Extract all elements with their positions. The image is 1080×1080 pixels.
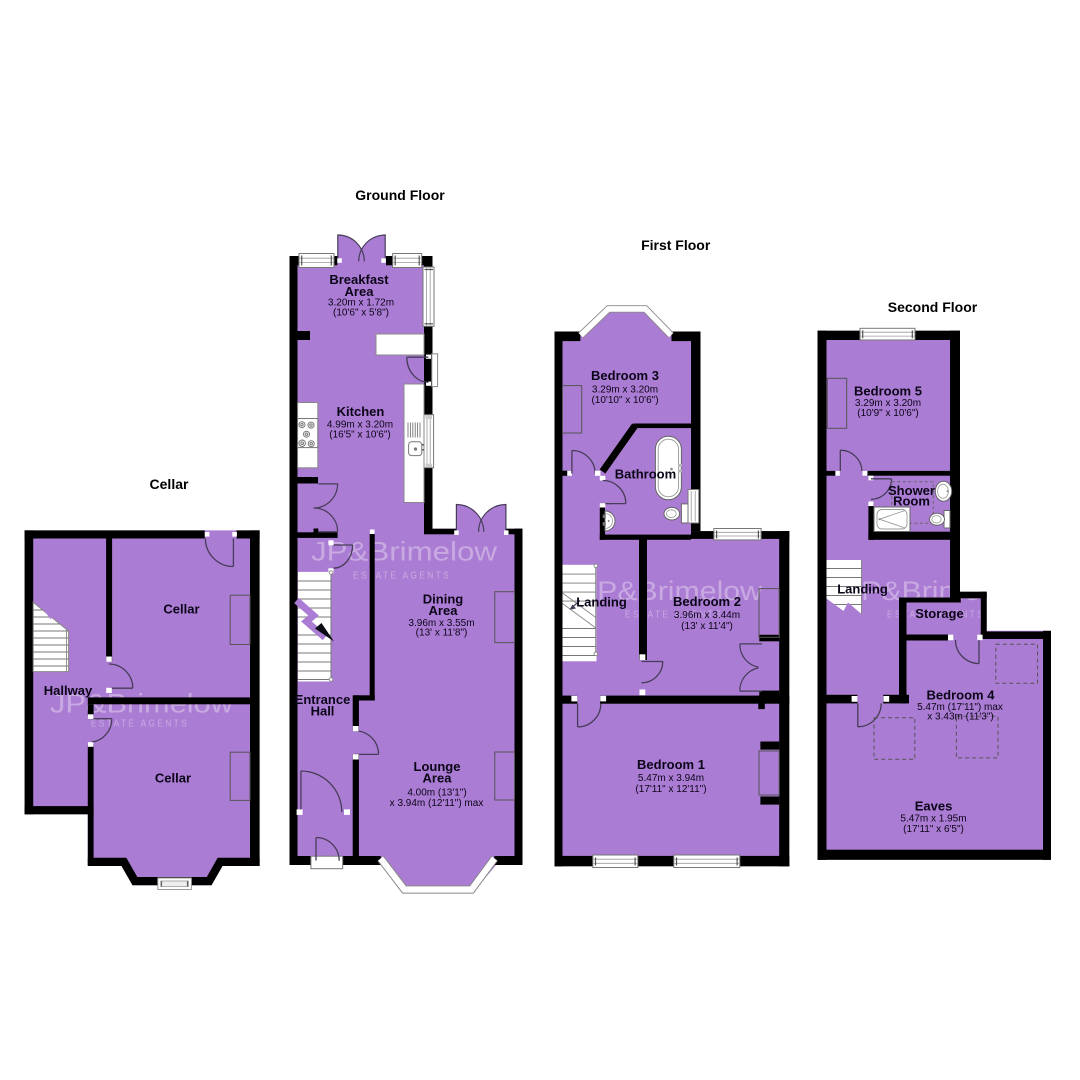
svg-text:5.47m x 1.95m: 5.47m x 1.95m [900,813,966,824]
svg-text:(17'11" x 6'5"): (17'11" x 6'5") [903,824,964,835]
svg-text:Hallway: Hallway [44,683,93,698]
svg-text:Area: Area [429,603,459,618]
svg-text:ESTATE AGENTS: ESTATE AGENTS [353,570,451,582]
svg-text:5.47m x 3.94m: 5.47m x 3.94m [638,773,704,784]
svg-text:Kitchen: Kitchen [337,404,385,419]
svg-text:Second Floor: Second Floor [888,299,978,315]
svg-text:(13' x 11'4"): (13' x 11'4") [681,621,733,632]
svg-text:Landing: Landing [837,582,888,597]
svg-text:Bedroom 2: Bedroom 2 [673,594,741,609]
svg-text:JP&Brimelow: JP&Brimelow [311,537,498,567]
svg-text:Ground Floor: Ground Floor [355,187,445,203]
svg-text:Storage: Storage [915,606,963,621]
svg-text:Bedroom 5: Bedroom 5 [854,384,922,399]
svg-text:x 3.43m (11'3"): x 3.43m (11'3") [927,711,993,722]
svg-text:Eaves: Eaves [915,799,953,814]
svg-text:(13' x 11'8"): (13' x 11'8") [416,628,468,639]
svg-text:Cellar: Cellar [150,476,189,492]
svg-text:3.29m x 3.20m: 3.29m x 3.20m [592,384,658,395]
svg-text:Bedroom 1: Bedroom 1 [637,757,705,772]
svg-text:Cellar: Cellar [155,771,191,786]
svg-text:Landing: Landing [576,595,627,610]
svg-text:Room: Room [893,494,930,509]
svg-text:(10'6" x 5'8"): (10'6" x 5'8") [333,307,389,318]
svg-text:(10'9" x 10'6"): (10'9" x 10'6") [857,408,919,419]
svg-text:Hall: Hall [311,704,335,719]
svg-text:First Floor: First Floor [641,237,711,253]
svg-text:Area: Area [423,771,453,786]
svg-text:(10'10" x 10'6"): (10'10" x 10'6") [591,395,658,406]
svg-text:3.96m x 3.44m: 3.96m x 3.44m [674,610,740,621]
svg-text:Bedroom 3: Bedroom 3 [591,368,659,383]
svg-text:(17'11" x 12'11"): (17'11" x 12'11") [635,784,706,795]
svg-text:Bathroom: Bathroom [615,467,676,482]
svg-text:Bedroom 4: Bedroom 4 [927,688,996,703]
svg-text:(16'5" x 10'6"): (16'5" x 10'6") [329,429,391,440]
svg-text:Cellar: Cellar [163,602,199,617]
svg-text:4.00m (13'1"): 4.00m (13'1") [407,787,466,798]
svg-text:x 3.94m (12'11") max: x 3.94m (12'11") max [390,798,484,809]
